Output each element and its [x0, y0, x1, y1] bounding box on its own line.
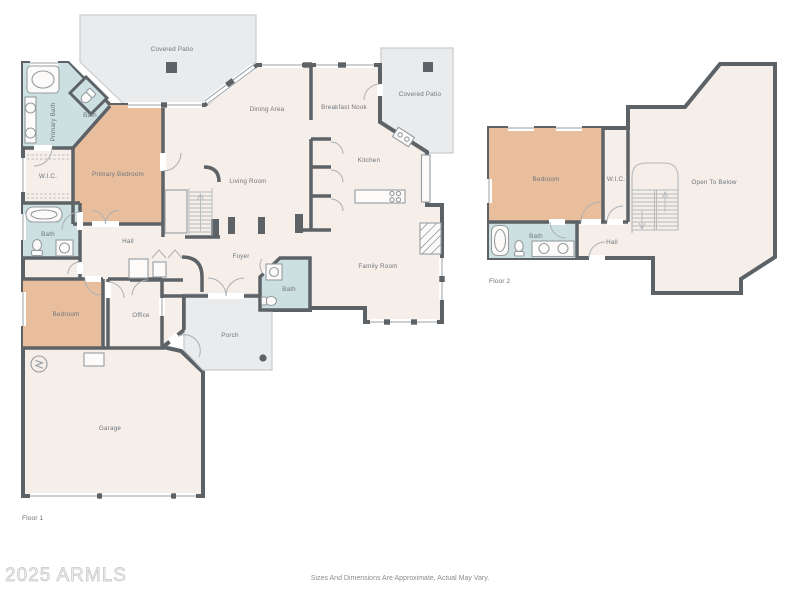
label-primary-bedroom: Primary Bedroom — [92, 171, 144, 178]
kitchen-counter — [422, 155, 431, 202]
label-powder-bath: Bath — [282, 286, 296, 293]
label-bedroom2: Bedroom — [53, 311, 80, 318]
floor-plan-page: Covered Patio Covered Patio Primary Bath… — [0, 0, 800, 600]
disclaimer-text: Sizes And Dimensions Are Approximate, Ac… — [311, 575, 489, 582]
label-porch: Porch — [221, 332, 239, 339]
patio-pillar-icon — [423, 62, 433, 72]
label-family-room: Family Room — [358, 263, 397, 270]
bathtub-icon — [27, 66, 59, 93]
hall-closet — [129, 259, 148, 278]
hall-closet — [153, 262, 166, 277]
label-floor2-wic: W.I.C. — [607, 176, 625, 183]
bathtub-icon — [26, 207, 62, 222]
label-open-to-below: Open To Below — [691, 179, 736, 186]
label-floor2-bedroom: Bedroom — [533, 176, 560, 183]
garage-utility-box — [84, 353, 104, 366]
bathtub-icon — [492, 226, 509, 256]
room-floor2-bedroom — [489, 128, 603, 222]
porch-post-icon — [259, 354, 266, 361]
label-covered-patio-top: Covered Patio — [151, 46, 194, 53]
vanity-counter — [56, 240, 73, 256]
label-hall: Hall — [122, 238, 134, 245]
column-stub — [258, 217, 265, 234]
column-stub — [228, 217, 235, 234]
label-floor2-bath: Bath — [529, 233, 543, 240]
floor-plan-drawing: Covered Patio Covered Patio Primary Bath… — [0, 0, 800, 600]
toilet-icon — [32, 240, 43, 256]
label-primary-bath: Primary Bath — [50, 102, 57, 141]
label-living-room: Living Room — [229, 178, 266, 185]
toilet-icon — [515, 241, 525, 257]
label-floor1: Floor 1 — [22, 515, 43, 522]
label-garage: Garage — [99, 425, 122, 432]
column-stub — [295, 214, 303, 233]
label-covered-patio-right: Covered Patio — [399, 91, 442, 98]
label-wic: W.I.C. — [39, 173, 57, 180]
label-dining-area: Dining Area — [250, 106, 285, 113]
footer: 2025 ARMLS Sizes And Dimensions Are Appr… — [5, 565, 489, 586]
label-foyer: Foyer — [232, 253, 249, 260]
label-floor2-hall: Hall — [606, 239, 618, 246]
fireplace-icon — [420, 223, 441, 254]
vanity-counter — [266, 264, 282, 280]
label-floor2: Floor 2 — [489, 278, 510, 285]
label-hall-bath: Bath — [41, 231, 55, 238]
label-primary-water-closet: Bath — [83, 112, 97, 119]
armls-watermark: 2025 ARMLS — [5, 565, 127, 586]
label-breakfast-nook: Breakfast Nook — [321, 104, 367, 111]
label-office: Office — [132, 312, 150, 319]
label-kitchen: Kitchen — [358, 157, 381, 164]
toilet-icon — [262, 297, 277, 306]
patio-pillar-icon — [166, 62, 177, 73]
